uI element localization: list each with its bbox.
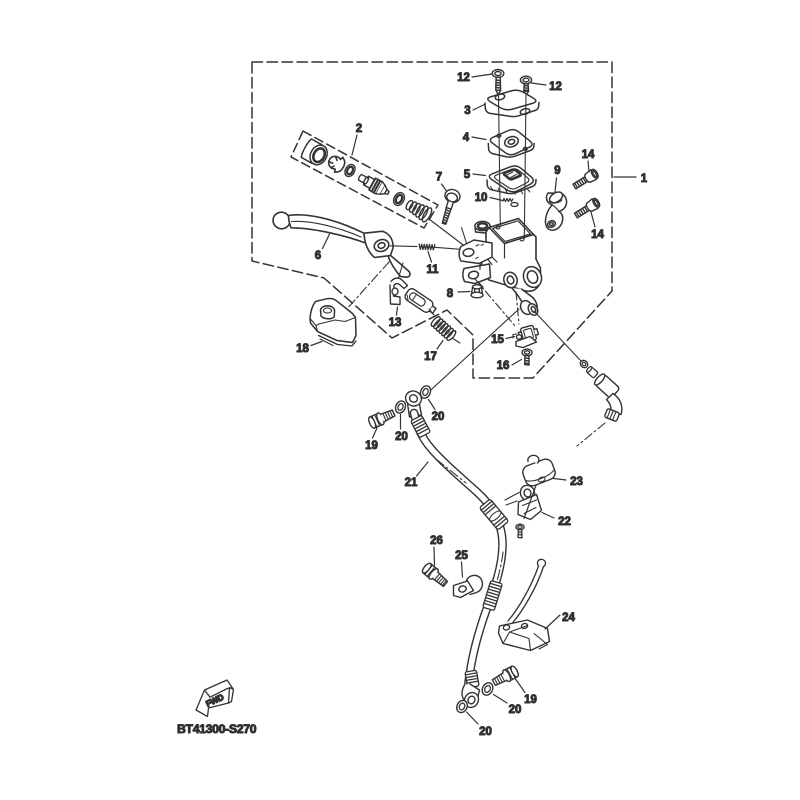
svg-text:6: 6 [315, 250, 321, 262]
svg-text:13: 13 [389, 317, 402, 329]
svg-text:BT41300-S270: BT41300-S270 [177, 722, 257, 736]
svg-text:21: 21 [405, 477, 418, 489]
svg-text:16: 16 [497, 360, 510, 372]
svg-text:14: 14 [591, 229, 604, 241]
svg-text:3: 3 [464, 105, 470, 117]
svg-text:19: 19 [524, 694, 537, 706]
svg-text:14: 14 [582, 149, 595, 161]
svg-text:23: 23 [570, 476, 583, 488]
svg-text:19: 19 [365, 440, 378, 452]
svg-text:9: 9 [554, 165, 560, 177]
svg-text:24: 24 [562, 612, 575, 624]
svg-text:20: 20 [509, 704, 522, 716]
svg-text:25: 25 [455, 550, 468, 562]
svg-text:2: 2 [356, 123, 362, 135]
svg-text:20: 20 [432, 411, 445, 423]
svg-text:11: 11 [426, 264, 439, 276]
svg-text:12: 12 [457, 72, 470, 84]
svg-text:26: 26 [430, 535, 443, 547]
svg-text:22: 22 [558, 516, 571, 528]
svg-text:17: 17 [424, 351, 437, 363]
svg-text:8: 8 [447, 288, 454, 300]
svg-text:7: 7 [436, 172, 442, 184]
svg-text:10: 10 [475, 192, 488, 204]
svg-text:15: 15 [491, 334, 504, 346]
svg-text:20: 20 [395, 431, 408, 443]
svg-text:5: 5 [464, 169, 471, 181]
svg-text:12: 12 [549, 81, 562, 93]
svg-text:4: 4 [463, 132, 470, 144]
svg-text:20: 20 [479, 726, 492, 738]
svg-text:18: 18 [296, 343, 309, 355]
svg-text:1: 1 [641, 173, 648, 185]
